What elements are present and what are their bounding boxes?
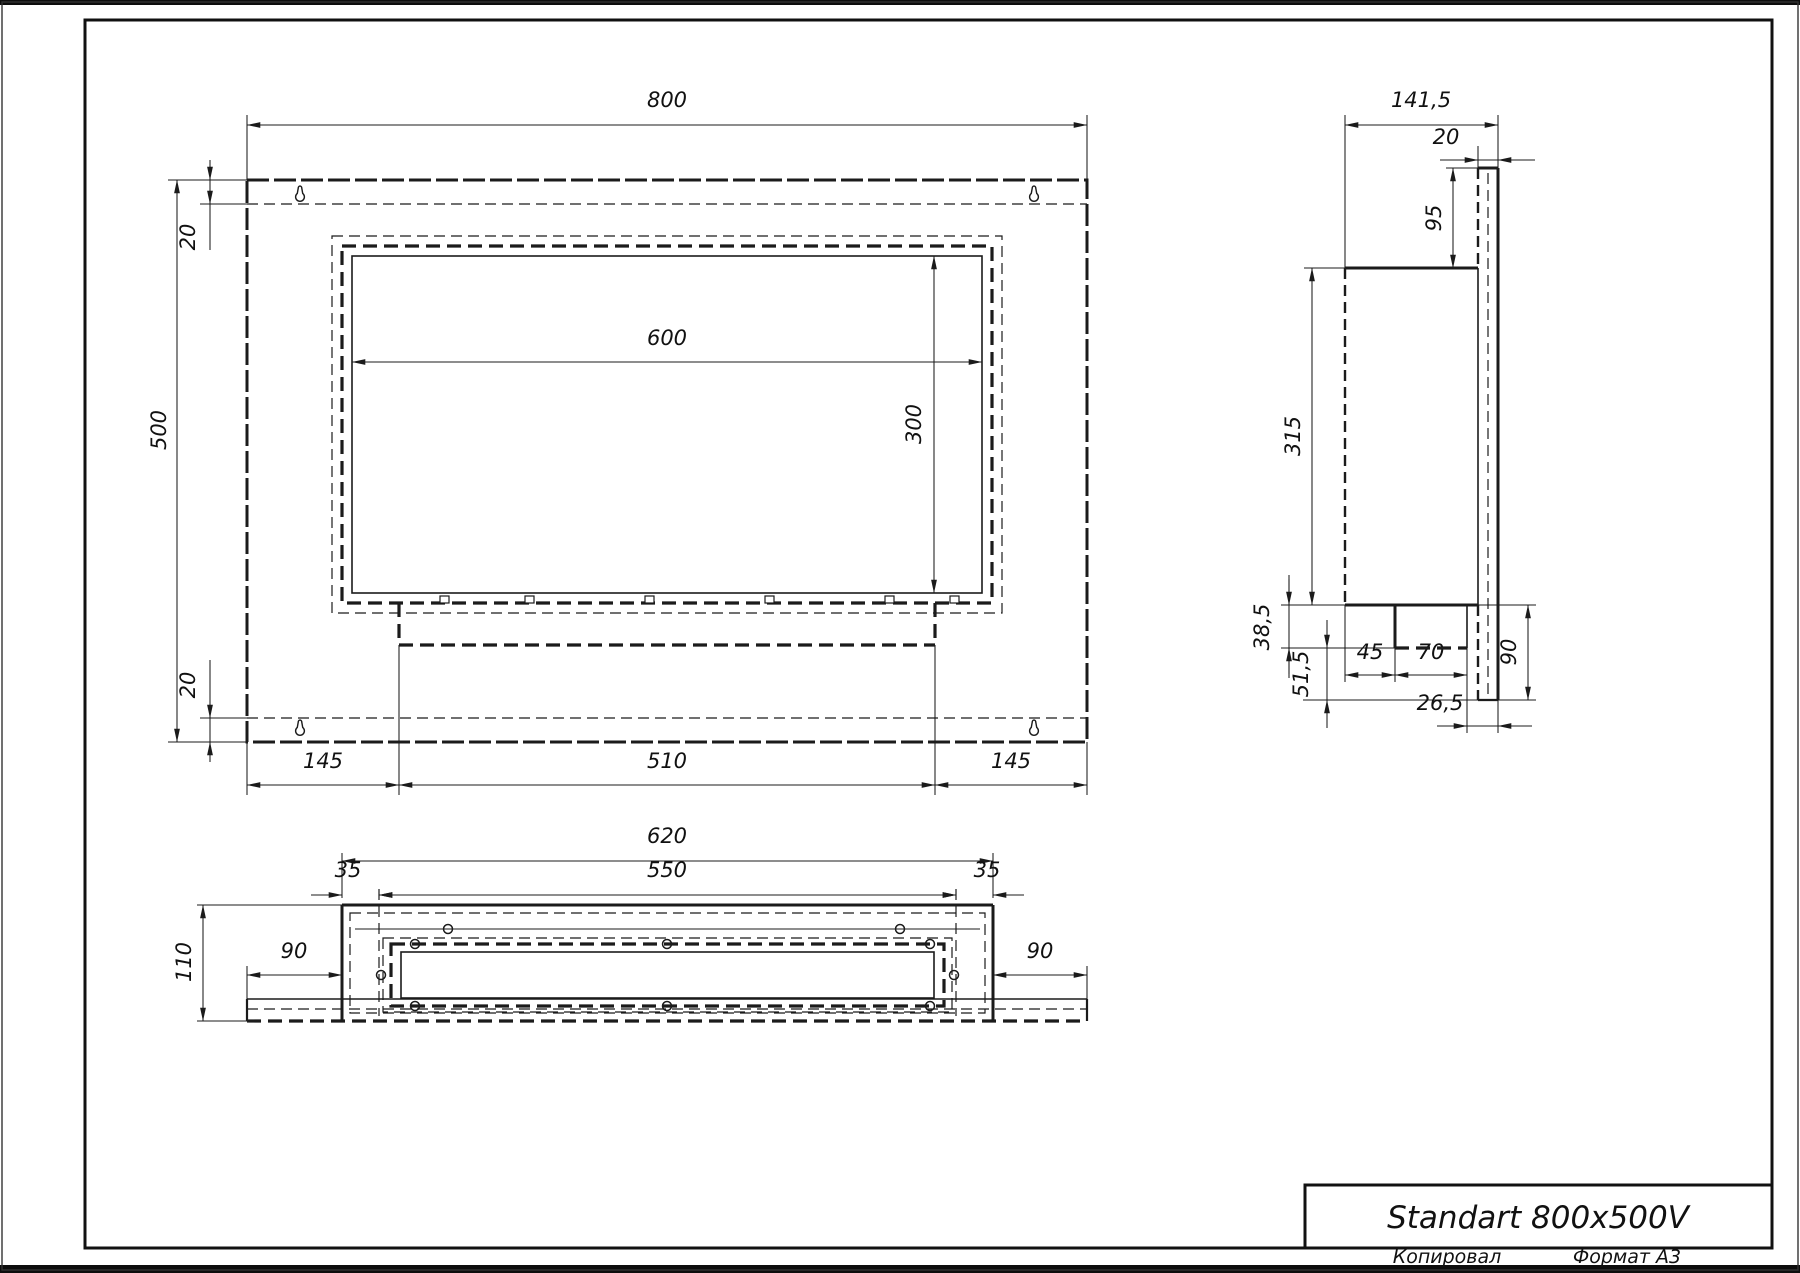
side-view: 141,5 20 95 315 38,5 51,5 45 70 26,5 90 xyxy=(1250,88,1536,733)
sheet-outline xyxy=(2,2,1798,1270)
front-view: 800 500 20 20 600 300 145 510 145 xyxy=(147,88,1087,795)
keyhole-icon xyxy=(296,720,305,735)
bottom-edge-bar xyxy=(0,1265,1800,1273)
bottom-view: 620 550 35 35 90 90 110 xyxy=(172,824,1087,1021)
dim-bottom-body-width: 620 xyxy=(647,824,687,848)
side-body xyxy=(1345,268,1478,605)
opening-inner xyxy=(352,256,982,593)
opening-mid-dashed xyxy=(342,246,992,603)
dim-front-margin-left: 145 xyxy=(303,749,343,773)
dim-side-tray-drop: 38,5 xyxy=(1250,604,1274,651)
dim-bottom-flange-left: 90 xyxy=(281,939,308,963)
keyhole-icon xyxy=(296,186,305,201)
dim-front-flange-bottom: 20 xyxy=(176,672,200,699)
dim-front-width: 800 xyxy=(647,88,687,112)
dim-bottom-margin-right: 35 xyxy=(974,858,1001,882)
side-wall-plate xyxy=(1478,168,1498,700)
dim-side-bottom-drop: 51,5 xyxy=(1289,651,1313,698)
front-panel-outline xyxy=(247,180,1087,742)
dim-side-total-depth: 141,5 xyxy=(1391,88,1451,112)
title-block: Standart 800x500V Копировал Формат А3 xyxy=(1305,1185,1772,1268)
format-label: Формат А3 xyxy=(1573,1246,1681,1268)
dim-side-front-inset: 45 xyxy=(1357,640,1384,664)
dim-side-body-height: 315 xyxy=(1281,416,1305,456)
drawing-sheet: 800 500 20 20 600 300 145 510 145 xyxy=(0,0,1800,1273)
dim-side-top-offset: 95 xyxy=(1422,205,1446,232)
dim-side-plate-thickness: 20 xyxy=(1433,125,1460,149)
dim-side-rear-inset: 26,5 xyxy=(1417,691,1464,715)
drawing-title: Standart 800x500V xyxy=(1387,1200,1692,1236)
bottom-box xyxy=(342,905,993,1021)
dim-side-tray-depth: 70 xyxy=(1418,640,1445,664)
dim-opening-height: 300 xyxy=(902,404,926,444)
dim-bottom-flange-right: 90 xyxy=(1027,939,1054,963)
dim-bottom-opening-width: 550 xyxy=(647,858,687,882)
dim-front-height: 500 xyxy=(147,410,171,450)
sheet-borders xyxy=(0,0,1800,1273)
dim-bottom-margin-left: 35 xyxy=(335,858,362,882)
bottom-extension-lines xyxy=(197,853,1087,1021)
keyhole-icon xyxy=(1030,186,1039,201)
front-extension-lines xyxy=(168,115,1087,795)
dim-bottom-depth: 110 xyxy=(172,942,196,982)
dim-opening-width: 600 xyxy=(647,326,687,350)
dim-side-below-body: 90 xyxy=(1497,639,1521,666)
dim-front-margin-right: 145 xyxy=(991,749,1031,773)
keyhole-icon xyxy=(1030,720,1039,735)
copied-by-label: Копировал xyxy=(1393,1246,1502,1268)
dim-front-flange-top: 20 xyxy=(176,224,200,251)
front-tray xyxy=(399,603,935,645)
dim-front-tray-width: 510 xyxy=(647,749,687,773)
